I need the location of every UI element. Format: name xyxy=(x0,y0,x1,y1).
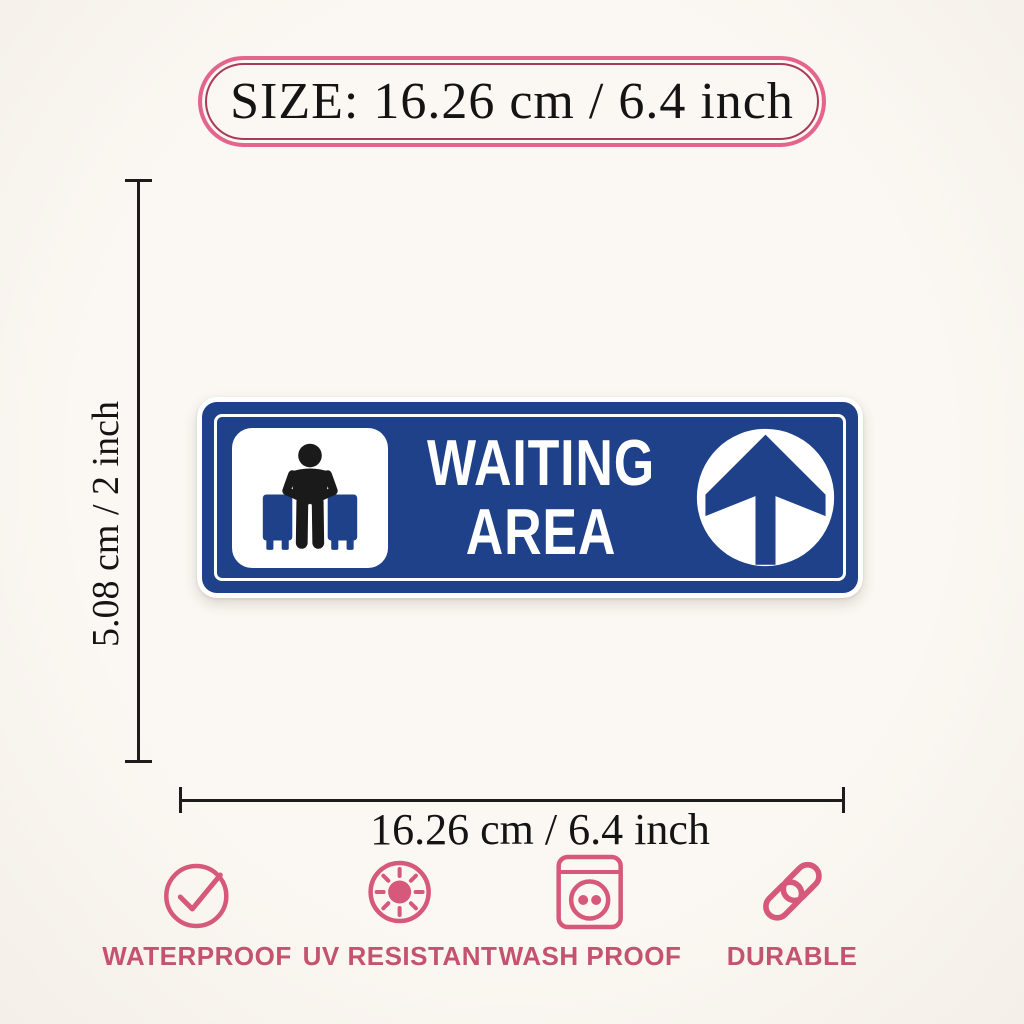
feature-label: DURABLE xyxy=(727,941,858,972)
waiting-area-sign: WAITING AREA xyxy=(197,397,863,598)
up-arrow-icon xyxy=(694,426,837,569)
height-dimension-label: 5.08 cm / 2 inch xyxy=(84,401,128,647)
feature-label: WATERPROOF xyxy=(102,941,291,972)
washing-machine-icon xyxy=(554,852,626,932)
sign-title-line2: AREA xyxy=(419,498,664,566)
chain-link-icon xyxy=(753,852,831,932)
width-dimension-cap-left xyxy=(179,787,182,813)
width-dimension-line xyxy=(179,799,845,802)
size-badge: SIZE: 16.26 cm / 6.4 inch xyxy=(198,56,826,147)
check-circle-icon xyxy=(156,852,238,932)
product-infographic: SIZE: 16.26 cm / 6.4 inch 5.08 cm / 2 in… xyxy=(0,0,1024,1024)
sign-title-line1: WAITING xyxy=(419,429,664,497)
feature-wash-proof: WASH PROOF xyxy=(499,852,682,972)
height-dimension-cap-bottom xyxy=(125,760,152,763)
sun-icon xyxy=(364,852,436,932)
feature-durable: DURABLE xyxy=(727,852,858,972)
feature-row: WATERPROOF UV RESISTANT xyxy=(0,852,1024,992)
width-dimension-cap-right xyxy=(842,787,845,813)
width-dimension-label: 16.26 cm / 6.4 inch xyxy=(370,804,710,855)
size-badge-text: SIZE: 16.26 cm / 6.4 inch xyxy=(230,72,794,131)
sign-title: WAITING AREA xyxy=(419,429,664,566)
sign-pictogram-panel xyxy=(232,428,388,568)
feature-waterproof: WATERPROOF xyxy=(102,852,291,972)
feature-label: WASH PROOF xyxy=(499,941,682,972)
height-dimension-line xyxy=(137,180,140,762)
feature-uv-resistant: UV RESISTANT xyxy=(303,852,498,972)
sign-face: WAITING AREA xyxy=(202,402,858,593)
sitting-person-icon xyxy=(251,436,369,560)
height-dimension-cap-top xyxy=(125,179,152,182)
feature-label: UV RESISTANT xyxy=(303,941,498,972)
